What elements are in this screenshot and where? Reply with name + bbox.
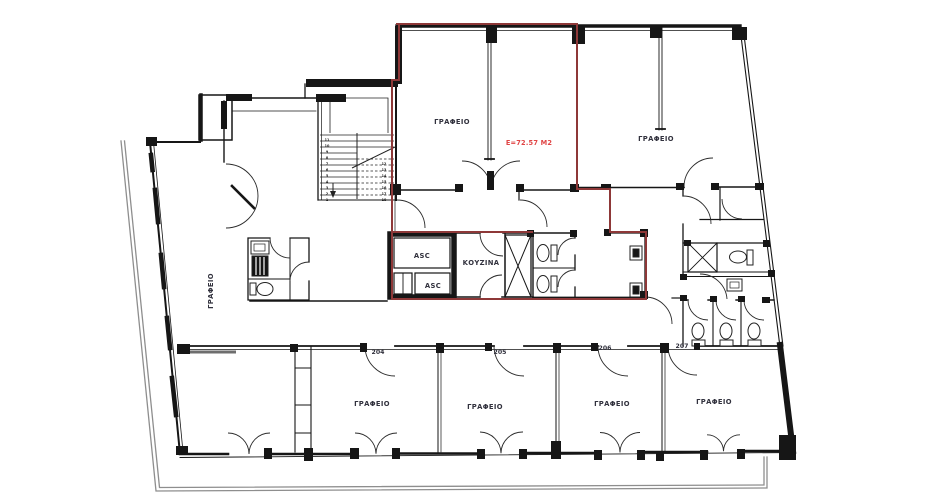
stair-step-number: 11 [325, 138, 330, 142]
room-label-206: ΓΡΑΦΕΙΟ [594, 400, 630, 408]
stair-step-number: 16 [382, 186, 387, 190]
door-arc-kitchen [480, 275, 502, 297]
room-label-204: ΓΡΑΦΕΙΟ [354, 400, 390, 408]
stair-direction-arrow [330, 191, 336, 198]
door-arc [684, 158, 713, 187]
door-arc-wc [558, 238, 575, 287]
french-door-arc [600, 433, 640, 453]
door-arc-kitchen [480, 233, 503, 256]
radiator [630, 246, 642, 260]
french-door-arc [355, 433, 397, 454]
toilet [692, 323, 705, 346]
room-number-205: 205 [494, 349, 507, 356]
walls [150, 26, 793, 458]
door-arc [397, 200, 425, 228]
room-label-top-right-office: ΓΡΑΦΕΙΟ [638, 135, 674, 143]
french-door-arc [480, 432, 523, 453]
toilet [537, 276, 557, 293]
room-number-207: 207 [676, 343, 689, 350]
toilet [250, 283, 273, 296]
stair-step-number: 14 [382, 174, 387, 178]
toilet [537, 245, 557, 262]
stair-step-number: 10 [325, 144, 330, 148]
french-door-arc [228, 433, 270, 454]
room-number-204: 204 [372, 349, 386, 356]
door-arc-wc [688, 300, 764, 320]
stair-step-number: 18 [382, 198, 387, 202]
property-boundary-line [121, 141, 767, 491]
shower-hatch [252, 256, 268, 276]
unit-area-label: E=72.57 M2 [506, 139, 553, 147]
room-label-elevator-top: ASC [414, 252, 430, 260]
toilet [720, 323, 733, 346]
stair-step-number: 15 [382, 180, 387, 184]
stair-step-number: 17 [382, 192, 387, 196]
toilet [748, 323, 761, 346]
room-number-206: 206 [599, 345, 612, 352]
floor-plan-canvas: 111098765432112131415161718 [0, 0, 952, 497]
room-label-207: ΓΡΑΦΕΙΟ [696, 398, 732, 406]
toilet [730, 250, 754, 265]
sink [251, 241, 269, 254]
floor-plan: 111098765432112131415161718 [0, 0, 952, 497]
stair-step-number: 13 [382, 168, 387, 172]
door-arc [700, 274, 727, 299]
stair-step-number: 12 [382, 162, 387, 166]
door-arc [520, 200, 547, 227]
door-arc [645, 297, 672, 324]
room-label-kitchen: ΚΟΥΖΙΝΑ [463, 259, 500, 267]
sink [727, 279, 742, 291]
french-door-arc [707, 435, 740, 452]
room-label-top-center-office: ΓΡΑΦΕΙΟ [434, 118, 470, 126]
room-label-left-office: ΓΡΑΦΕΙΟ [207, 273, 215, 309]
door-arc-207 [668, 346, 697, 375]
door-arc [722, 199, 742, 219]
elevator-core [390, 234, 454, 297]
room-label-205: ΓΡΑΦΕΙΟ [467, 403, 503, 411]
room-label-elevator-bottom: ASC [425, 282, 441, 290]
